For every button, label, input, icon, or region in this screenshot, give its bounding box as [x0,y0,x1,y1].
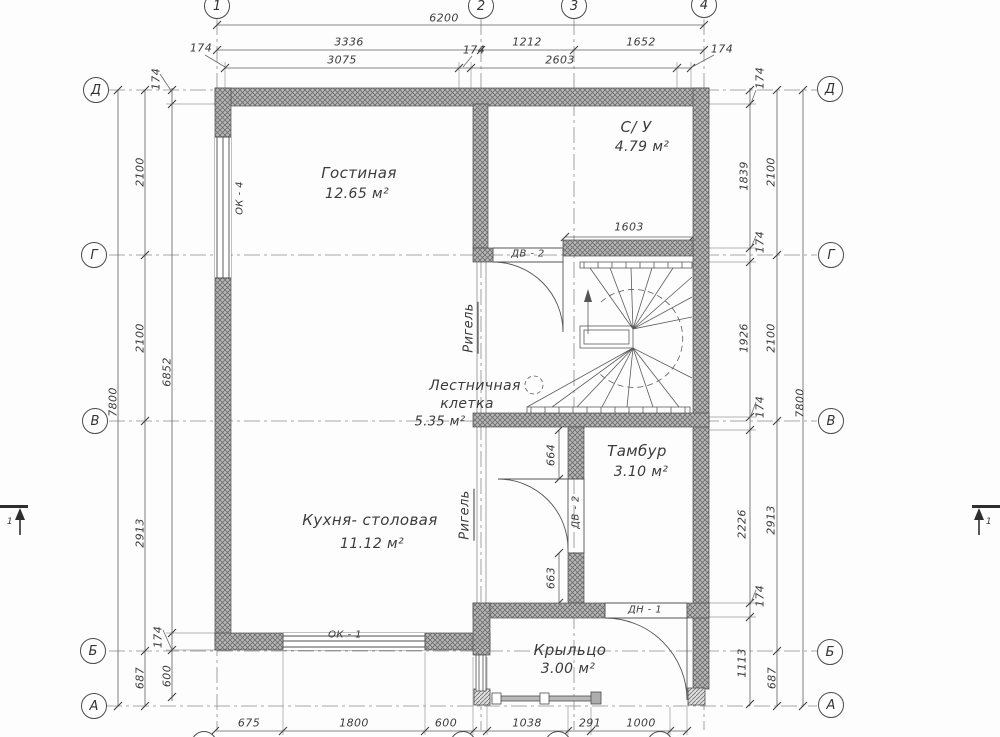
wall-beam-v-axis [473,413,709,427]
room-tambour-area: 3.10 м² [614,464,669,480]
axis-b-left: Б [80,638,106,664]
dim-7800-right: 7800 [794,388,807,418]
porch-column [476,655,486,691]
wall-right [693,88,709,689]
tag-dv2-bath: ДВ - 2 [511,249,544,260]
porch-post-left [474,689,490,705]
dim-675: 675 [238,717,260,730]
dim-600-left: 600 [161,665,174,687]
wall-bath-bottom-stub [473,248,493,262]
door-dv2-bath [493,248,563,332]
dim-664: 664 [545,444,558,466]
dim-2100-right-b: 2100 [765,323,778,353]
dim-1926: 1926 [738,323,751,353]
section-mark-right: 1 [986,517,992,527]
room-porch-name: Крыльцо [534,641,607,659]
dim-1212: 1212 [512,36,542,49]
dim-2913-right: 2913 [765,505,778,535]
axis-b-right: Б [817,639,843,665]
tag-ok1: ОК - 1 [328,630,362,641]
room-stair-name-2: клетка [440,396,494,412]
dim-174-top-axis2: 174 [463,44,485,57]
stair-lower-treads [527,348,692,407]
wall-bath-bottom [563,240,693,256]
dim-174-right-3: 174 [754,396,767,418]
dim-6200: 6200 [429,12,459,25]
dim-663: 663 [545,567,558,589]
dim-174-right-4: 174 [754,585,767,607]
dim-2603: 2603 [545,54,575,67]
axis-lines [106,19,817,730]
wall-porch-top-right [687,603,709,618]
wall-porch-top [473,603,605,618]
axis-g-left: Г [81,242,107,268]
axis-d-left: Д [83,77,109,103]
axis-a-left: А [81,693,107,719]
dim-7800-left: 7800 [107,387,120,417]
axis-v-right: В [818,408,844,434]
tag-rigel-2: Ригель [458,489,475,541]
tag-rigel-1: Ригель [462,302,479,354]
dim-2100-left-b: 2100 [134,323,147,353]
dim-3336: 3336 [334,36,364,49]
dim-174-right-1: 174 [754,67,767,89]
dim-174-right-2: 174 [754,231,767,253]
stair-arrow-head [584,289,592,302]
wall-tambour-left-upper [568,427,584,479]
room-wc-name: С/ У [620,118,651,136]
section-marker-left [0,505,28,535]
axis-d-right: Д [817,76,843,102]
wall-tambour-left-lower [568,553,584,603]
axis-v-left: В [82,408,108,434]
wall-living-bath-divider [473,104,488,248]
dim-174-top-right: 174 [711,43,733,56]
window-ok4 [215,137,231,278]
dim-1800: 1800 [339,717,369,730]
plan-linework [0,0,1000,737]
stair-column-dashed [525,376,543,394]
room-porch-area: 3.00 м² [541,661,596,677]
porch-post-right [688,688,705,705]
wall-top [215,88,709,106]
tag-ok4: ОК - 4 [235,181,246,215]
dim-600-bottom: 600 [435,717,457,730]
section-mark-left: 1 [7,517,13,527]
dim-687-right: 687 [766,667,779,689]
room-kitchen-area: 11.12 м² [340,536,404,552]
dim-6852: 6852 [161,357,174,387]
tag-dn1: ДН - 1 [628,605,662,616]
dim-2913-left: 2913 [134,518,147,548]
dim-1652: 1652 [626,36,656,49]
dim-174-left-bottom: 174 [152,626,165,648]
dim-1038: 1038 [512,717,542,730]
room-stair-name-1: Лестничная [429,378,521,394]
dim-2100-left-a: 2100 [134,157,147,187]
dim-1113: 1113 [736,648,749,678]
staircase [525,262,692,413]
dim-174-left-top: 174 [150,68,163,90]
dim-1000: 1000 [626,717,656,730]
room-living-name: Гостиная [321,164,397,182]
axis-a-right: А [818,692,844,718]
floor-plan-sheet: 6200333612121652174307517426031747800210… [0,0,1000,737]
wall-step-corner [473,603,490,655]
tag-dv2-kitchen: ДВ - 2 [571,495,582,528]
axis-g-right: Г [818,242,844,268]
dim-1839: 1839 [738,161,751,191]
room-tambour-name: Тамбур [607,442,667,460]
room-kitchen-name: Кухня- столовая [302,511,437,529]
room-stair-area: 5.35 м² [415,415,466,430]
dim-2226: 2226 [736,509,749,539]
dim-174-top-left: 174 [190,42,212,55]
dim-3075: 3075 [327,54,357,67]
dim-291: 291 [579,717,601,730]
dim-1603: 1603 [614,221,644,234]
dim-2100-right-a: 2100 [765,157,778,187]
door-dn1-porch [605,603,687,700]
dim-687-left: 687 [134,667,147,689]
room-wc-area: 4.79 м² [615,139,670,155]
room-living-area: 12.65 м² [325,186,389,202]
